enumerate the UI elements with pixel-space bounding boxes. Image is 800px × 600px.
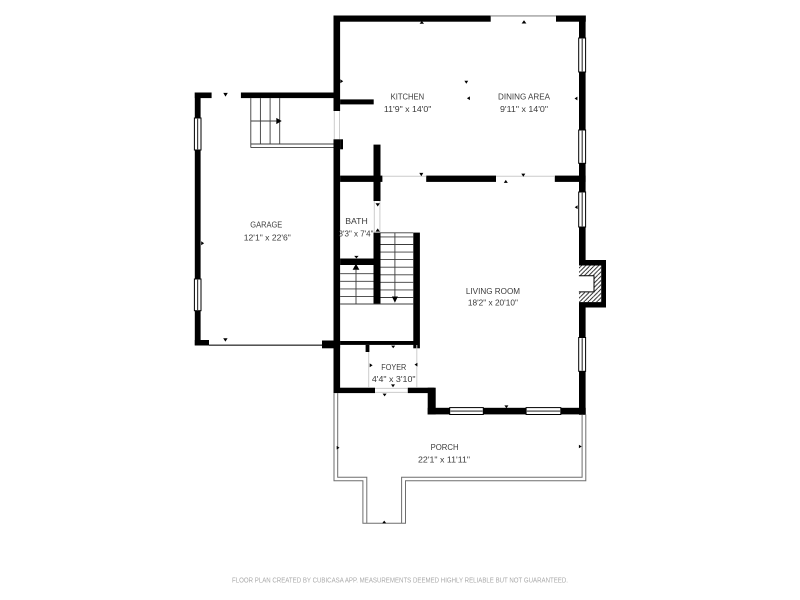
svg-text:DINING AREA: DINING AREA — [498, 92, 550, 102]
svg-text:11'9" x 14'0": 11'9" x 14'0" — [384, 104, 432, 114]
svg-text:KITCHEN: KITCHEN — [391, 92, 425, 102]
svg-text:12'1" x 22'6": 12'1" x 22'6" — [244, 232, 291, 242]
svg-text:FLOOR PLAN CREATED BY CUBICASA: FLOOR PLAN CREATED BY CUBICASA APP. MEAS… — [232, 577, 568, 584]
svg-text:9'11" x 14'0": 9'11" x 14'0" — [500, 104, 548, 114]
svg-text:3'3" x 7'4": 3'3" x 7'4" — [339, 229, 374, 239]
svg-text:FOYER: FOYER — [381, 362, 406, 372]
svg-text:LIVING ROOM: LIVING ROOM — [466, 286, 520, 296]
svg-text:22'1" x 11'11": 22'1" x 11'11" — [418, 454, 470, 464]
svg-text:18'2" x 20'10": 18'2" x 20'10" — [468, 298, 518, 308]
svg-text:BATH: BATH — [345, 216, 368, 226]
svg-text:PORCH: PORCH — [431, 442, 459, 452]
svg-text:GARAGE: GARAGE — [250, 220, 282, 230]
svg-text:4'4" x 3'10": 4'4" x 3'10" — [372, 374, 416, 384]
